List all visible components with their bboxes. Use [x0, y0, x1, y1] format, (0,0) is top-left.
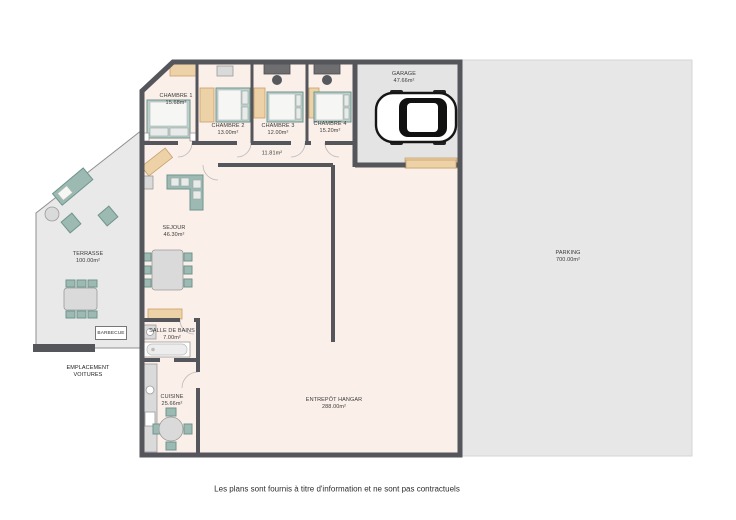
- room-label-terrasse: TERRASSE 100.00m²: [73, 251, 103, 265]
- room-label-garage: GARAGE 47.66m²: [392, 71, 416, 85]
- room-label-chambre2: CHAMBRE 2 13.00m²: [212, 123, 245, 137]
- dining-table: [152, 250, 183, 290]
- terrace-dining-table: [64, 288, 97, 310]
- bed-pillow: [344, 108, 349, 119]
- sofa-cushion: [171, 178, 179, 186]
- bathtub-drain: [151, 348, 155, 352]
- kitchen-sink: [146, 386, 154, 394]
- dresser: [217, 66, 233, 76]
- terrace-dining-chair: [77, 311, 86, 318]
- bed-mattress: [269, 94, 295, 120]
- wardrobe: [254, 88, 265, 118]
- room-label-cuisine: CUISINE 25.66m²: [160, 394, 183, 408]
- terrace-wall: [33, 344, 95, 352]
- terrace-dining-chair: [88, 280, 97, 287]
- dining-chair: [184, 253, 192, 261]
- kitchen-chair: [166, 408, 176, 416]
- sofa-cushion: [193, 180, 201, 188]
- garage-door-threshold: [406, 160, 456, 168]
- sideboard: [148, 309, 182, 319]
- room-label-chambre1: CHAMBRE 1 15.68m²: [160, 93, 193, 107]
- bed-pillow: [344, 95, 349, 106]
- terrace-dining-chair: [66, 280, 75, 287]
- bed-pillow: [170, 128, 188, 136]
- desk: [314, 64, 340, 74]
- round-side-table: [45, 207, 59, 221]
- dining-chair: [184, 266, 192, 274]
- room-label-couloir: 11.81m²: [262, 150, 282, 157]
- bed-pillow: [242, 91, 248, 104]
- room-label-sejour: SEJOUR 46.30m²: [163, 225, 186, 239]
- plan-disclaimer: Les plans sont fournis à titre d'informa…: [214, 485, 460, 494]
- desk-chair: [272, 75, 282, 85]
- dining-chair: [184, 279, 192, 287]
- wardrobe: [170, 64, 196, 76]
- bed-mattress: [316, 94, 343, 120]
- desk: [264, 64, 290, 74]
- bed-pillow: [296, 95, 301, 106]
- kitchen-counter: [143, 364, 157, 452]
- room-label-parking: PARKING 700.00m²: [555, 250, 580, 264]
- terrace-dining-chair: [66, 311, 75, 318]
- terrace-dining-chair: [77, 280, 86, 287]
- floor-plan-drawing: [0, 0, 736, 520]
- bed-pillow: [242, 107, 248, 120]
- car-roof: [407, 103, 438, 132]
- sofa-cushion: [193, 191, 201, 199]
- bed-pillow: [150, 128, 168, 136]
- floor-plan-page: CHAMBRE 1 15.68m² CHAMBRE 2 13.00m² CHAM…: [0, 0, 736, 520]
- room-label-salle-de-bains: SALLE DE BAINS 7.00m²: [149, 328, 195, 342]
- car-top-view: [376, 90, 456, 145]
- barbecue-area: BARBECUE: [95, 326, 127, 340]
- sofa-cushion: [181, 178, 189, 186]
- desk-chair: [322, 75, 332, 85]
- wardrobe: [200, 88, 214, 122]
- kitchen-chair: [166, 442, 176, 450]
- room-label-entrepot-hangar: ENTREPÔT HANGAR 288.00m²: [306, 397, 362, 411]
- kitchen-table: [159, 417, 183, 441]
- bed-pillow: [296, 108, 301, 119]
- bed-mattress: [218, 90, 241, 120]
- room-label-chambre3: CHAMBRE 3 12.00m²: [262, 123, 295, 137]
- room-label-chambre4: CHAMBRE 4 15.20m²: [314, 121, 347, 135]
- kitchen-chair: [184, 424, 192, 434]
- room-label-emplacement-voitures: EMPLACEMENT VOITURES: [59, 365, 117, 379]
- terrace-dining-chair: [88, 311, 97, 318]
